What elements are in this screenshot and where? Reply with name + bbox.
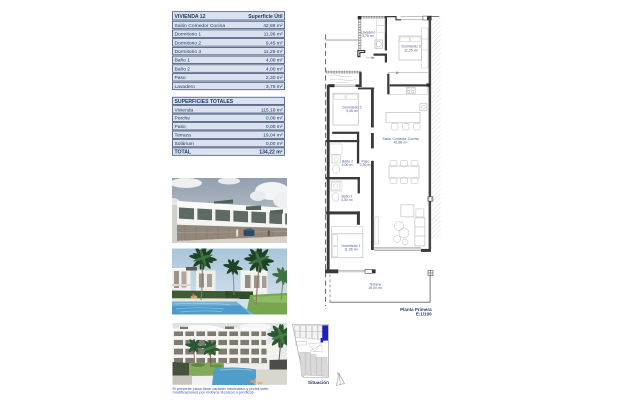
svg-text:Porche: Porche [175, 116, 191, 122]
svg-text:Vivienda: Vivienda [175, 107, 194, 113]
svg-text:0,00 m²: 0,00 m² [266, 141, 283, 147]
svg-text:Baño 1: Baño 1 [175, 58, 191, 64]
svg-text:42,86 m²: 42,86 m² [263, 23, 283, 29]
svg-text:Patio: Patio [175, 124, 186, 130]
svg-text:Paso: Paso [175, 75, 186, 81]
svg-text:Dormitorio 2: Dormitorio 2 [175, 40, 202, 46]
svg-text:19,04 m²: 19,04 m² [368, 286, 383, 290]
svg-text:9,45 m²: 9,45 m² [346, 109, 359, 113]
svg-text:Lavadero: Lavadero [175, 84, 196, 90]
svg-text:9,45 m²: 9,45 m² [266, 40, 283, 46]
svg-text:VIVIENDA 12: VIVIENDA 12 [175, 14, 206, 20]
svg-text:134,22 m²: 134,22 m² [259, 150, 283, 156]
svg-text:Superficie Útil: Superficie Útil [248, 13, 283, 20]
svg-text:0,00 m²: 0,00 m² [266, 116, 283, 122]
svg-text:modificaciones por motivos téc: modificaciones por motivos técnicos o ju… [173, 390, 254, 395]
svg-text:Solárium: Solárium [175, 141, 194, 147]
svg-text:2,30 m²: 2,30 m² [266, 75, 283, 81]
svg-text:11,25 m²: 11,25 m² [404, 48, 418, 52]
svg-text:Situación: Situación [308, 380, 329, 385]
svg-text:4,00 m²: 4,00 m² [342, 163, 355, 167]
svg-text:4,00 m²: 4,00 m² [266, 66, 283, 72]
svg-text:11,96 m²: 11,96 m² [264, 32, 283, 38]
svg-text:0,00 m²: 0,00 m² [266, 124, 283, 130]
svg-text:TOTAL: TOTAL [175, 150, 192, 156]
svg-text:Dormitorio 3: Dormitorio 3 [175, 49, 202, 55]
svg-text:42,86 m²: 42,86 m² [394, 141, 409, 145]
svg-text:4,00 m²: 4,00 m² [266, 58, 283, 64]
svg-text:19,04 m²: 19,04 m² [263, 133, 283, 139]
svg-text:3,75 m²: 3,75 m² [266, 84, 283, 90]
svg-text:2,30 m²: 2,30 m² [360, 163, 373, 167]
svg-text:11,25 m²: 11,25 m² [264, 49, 283, 55]
svg-text:Dormitorio 1: Dormitorio 1 [175, 32, 202, 38]
svg-text:115,18 m²: 115,18 m² [261, 107, 283, 113]
svg-text:Terraza: Terraza [175, 133, 192, 139]
svg-text:Baño 2: Baño 2 [175, 66, 191, 72]
svg-text:4,00 m²: 4,00 m² [341, 198, 354, 202]
svg-text:3,75 m²: 3,75 m² [362, 34, 375, 38]
svg-text:E:1/100: E:1/100 [416, 312, 432, 317]
svg-text:Salón Comedor Cocina: Salón Comedor Cocina [175, 23, 226, 29]
svg-text:SUPERFICIES TOTALES: SUPERFICIES TOTALES [175, 99, 234, 105]
svg-text:11,96 m²: 11,96 m² [344, 248, 358, 252]
